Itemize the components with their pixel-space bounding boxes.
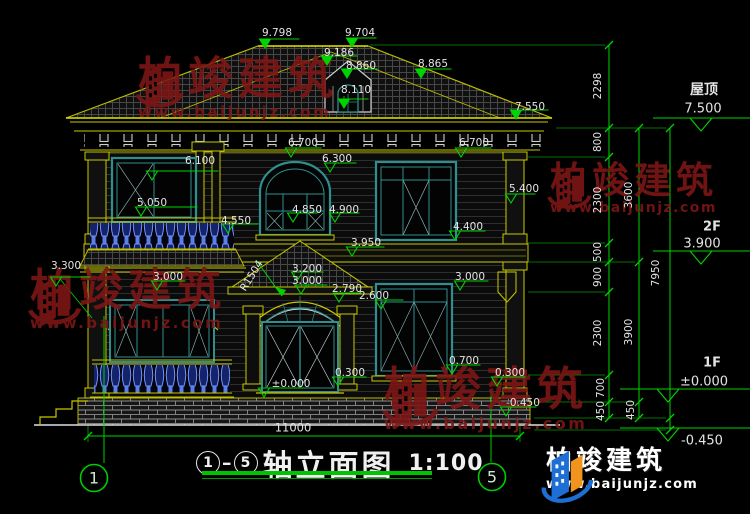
dim-label: 7.500	[684, 103, 721, 116]
dim-label: -0.450	[681, 435, 723, 448]
dim-label: ±0.000	[272, 379, 311, 390]
dim-label: -0.450	[506, 398, 540, 409]
dim-label: 6.300	[322, 154, 352, 165]
elevation-marker	[657, 389, 679, 402]
title-underline-thick	[202, 471, 432, 475]
dim-label: 8.865	[418, 59, 448, 70]
dim-label: 0.300	[335, 368, 365, 379]
dim-label: 6.700	[459, 138, 489, 149]
dim-label: 3.200	[292, 264, 322, 275]
dim-label: 3.000	[292, 276, 322, 287]
dim-label: 3.000	[455, 272, 485, 283]
dim-label: 800	[593, 132, 604, 152]
dim-label: 7.550	[515, 102, 545, 113]
dim-label: 2.790	[332, 284, 362, 295]
dim-label: 1F	[703, 357, 721, 370]
elevation-marker	[147, 171, 158, 180]
dim-label: 500	[593, 242, 604, 262]
dim-label: 6.700	[288, 138, 318, 149]
dim-label: 4.550	[221, 216, 251, 227]
company-logo-icon	[540, 447, 594, 507]
dim-label: 9.186	[324, 48, 354, 59]
axis-number-1: 1	[89, 469, 99, 488]
dim-label: 4.900	[329, 205, 359, 216]
elevation-marker	[416, 69, 427, 78]
elevation-marker	[260, 39, 271, 48]
dim-label: 9.704	[345, 28, 375, 39]
dim-label: 3.900	[683, 238, 720, 251]
dim-label: 3.950	[351, 238, 381, 249]
dim-label: 3600	[624, 182, 635, 209]
dim-label: 9.798	[262, 28, 292, 39]
dim-label: 3.300	[51, 261, 81, 272]
dim-label: 2298	[593, 73, 604, 100]
elevation-marker	[259, 388, 270, 397]
dim-label: 0.700	[449, 356, 479, 367]
elevation-marker	[690, 118, 712, 131]
dim-label: 3900	[624, 319, 635, 346]
elevation-marker	[506, 194, 517, 203]
elevation-marker	[657, 428, 679, 441]
dim-label: 450	[626, 400, 637, 420]
axis-number-5: 5	[487, 468, 497, 487]
dim-label: 5.400	[509, 184, 539, 195]
dim-label: 2300	[593, 187, 604, 214]
dim-label: 2300	[593, 320, 604, 347]
elevation-marker	[51, 277, 62, 286]
dim-label: ±0.000	[680, 376, 728, 389]
elevation-marker	[347, 38, 358, 47]
dim-label: 7950	[651, 260, 662, 287]
elevation-marker	[339, 99, 350, 108]
cad-canvas: 柏竣建筑 www.baijunjz.com 柏竣建筑 www.baijunjz.…	[0, 0, 750, 514]
dim-label: 900	[593, 267, 604, 287]
dim-label: 4.850	[292, 205, 322, 216]
dim-label: 6.100	[185, 156, 215, 167]
dim-label: 2F	[703, 221, 721, 234]
dim-label: 2.600	[359, 291, 389, 302]
elevation-marker	[286, 148, 297, 157]
dim-label: 3.000	[153, 272, 183, 283]
company-logo: 柏竣建筑 www.baijunjz.com	[540, 447, 698, 492]
dim-label: 4.400	[453, 222, 483, 233]
elevation-markers	[0, 0, 750, 514]
dim-label: 0.300	[495, 368, 525, 379]
dim-label: 5.050	[137, 198, 167, 209]
elevation-marker	[690, 251, 712, 264]
dim-label: 屋顶	[690, 83, 718, 97]
dim-label: 8.110	[341, 85, 371, 96]
dim-label: 700	[596, 378, 607, 398]
elevation-marker	[456, 148, 467, 157]
title-underline-thin	[202, 478, 432, 479]
dim-label: 11000	[275, 422, 312, 434]
dim-label: 450	[596, 401, 607, 421]
dim-label: 8.860	[346, 61, 376, 72]
